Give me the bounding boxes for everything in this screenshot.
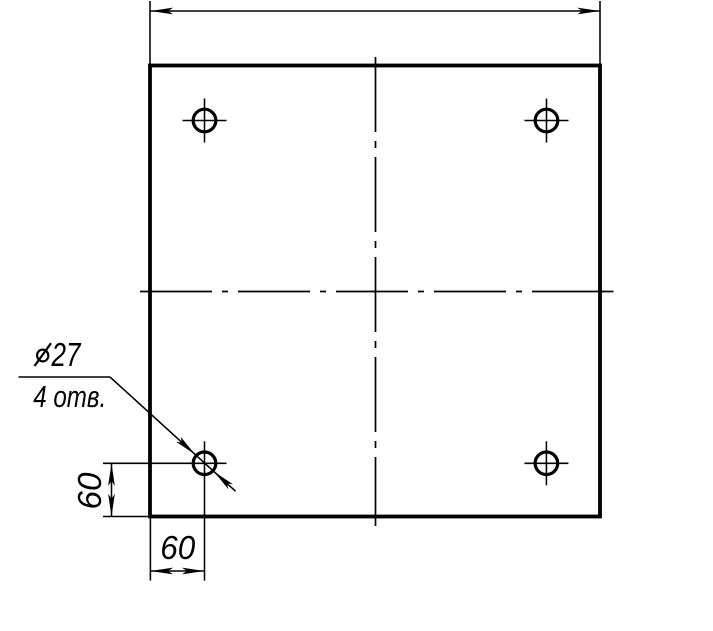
svg-text:60: 60 xyxy=(160,529,196,566)
svg-text:60: 60 xyxy=(71,472,108,510)
svg-text:4 отв.: 4 отв. xyxy=(33,379,106,414)
svg-text:27: 27 xyxy=(51,336,82,373)
